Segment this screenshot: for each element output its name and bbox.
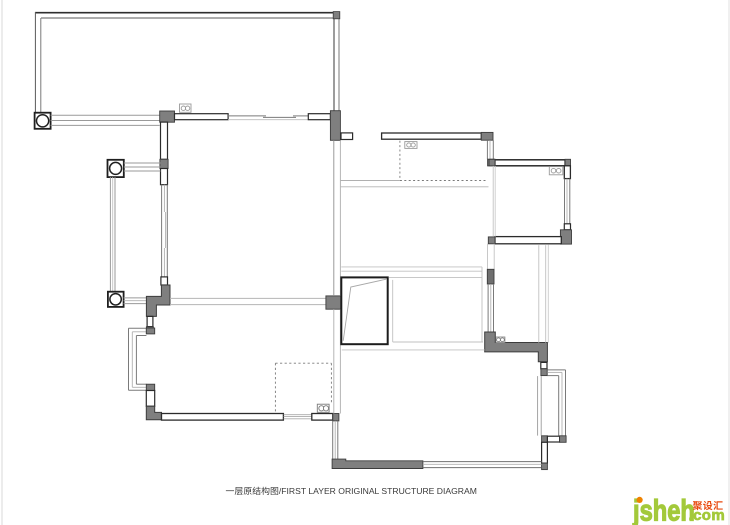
- svg-text:/FIRST LAYER ORIGINAL STRUCTUR: /FIRST LAYER ORIGINAL STRUCTURE DIAGRAM: [279, 486, 477, 496]
